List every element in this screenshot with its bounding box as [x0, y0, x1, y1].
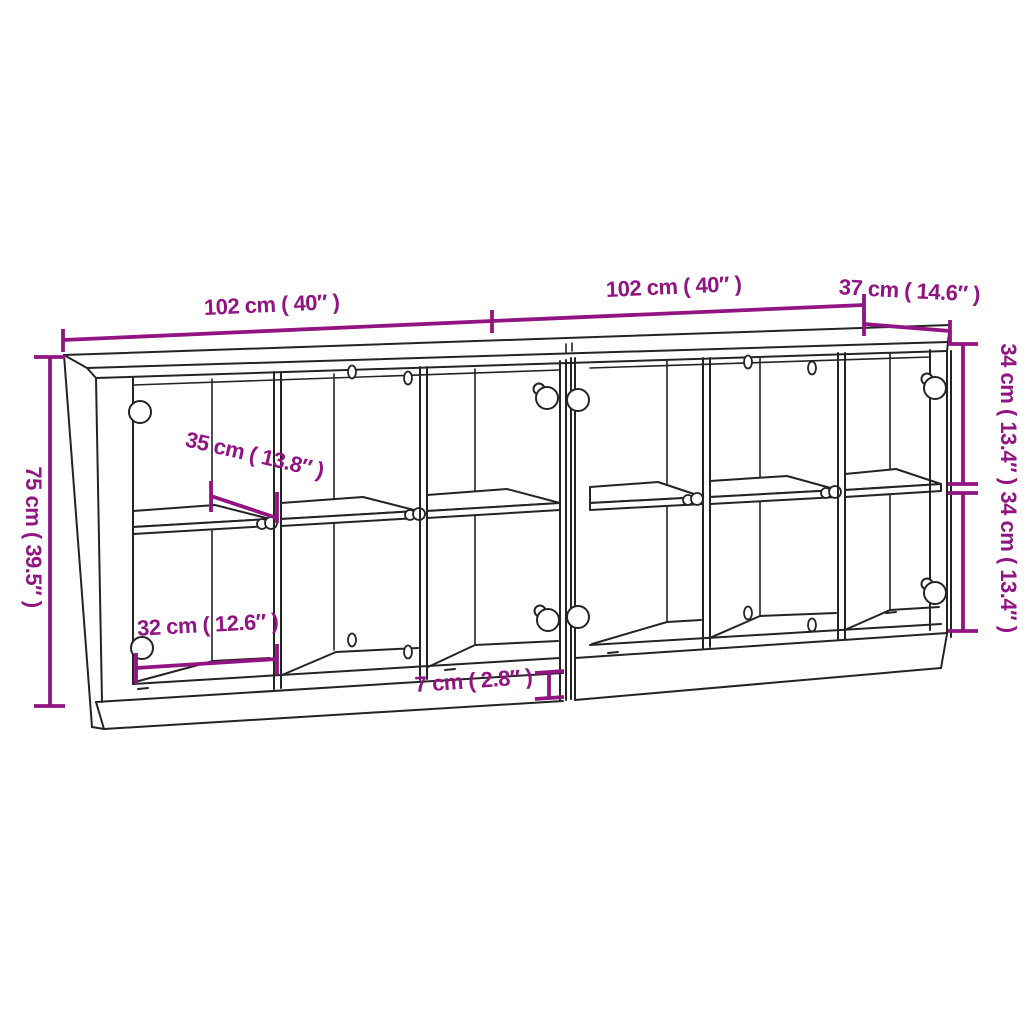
dim-compartment-width: 32 cm ( 12.6″ ) — [136, 608, 279, 684]
dim-lower-section-label: 34 cm ( 13.4″ ) — [996, 491, 1021, 632]
shelf-right-cabinet-col2 — [710, 476, 838, 504]
dim-depth: 37 cm ( 14.6″ ) — [838, 274, 981, 343]
dim-compartment-width-label: 32 cm ( 12.6″ ) — [136, 608, 279, 640]
dimension-diagram: 102 cm ( 40″ ) 102 cm ( 40″ ) 37 cm ( 14… — [0, 0, 1024, 1024]
shelf-right-cabinet-col3 — [845, 469, 941, 497]
dim-plinth-height: 7 cm ( 2.8″ ) — [414, 664, 564, 699]
dim-width-right-label: 102 cm ( 40″ ) — [605, 271, 742, 302]
dim-height: 75 cm ( 39.5″ ) — [21, 357, 65, 706]
ceiling-line-left — [133, 370, 560, 385]
shelf-left-cabinet-col2 — [281, 497, 418, 526]
dim-depth-label: 37 cm ( 14.6″ ) — [838, 274, 981, 306]
shelf-left-cabinet-col3 — [427, 489, 560, 518]
dim-width-left-label: 102 cm ( 40″ ) — [203, 289, 340, 320]
dim-upper-section: 34 cm ( 13.4″ ) — [948, 343, 1021, 484]
dim-shelf-depth-label: 35 cm ( 13.8″ ) — [183, 427, 326, 483]
bookcase-diagram-canvas: 102 cm ( 40″ ) 102 cm ( 40″ ) 37 cm ( 14… — [0, 0, 1024, 1024]
dim-width-right: 102 cm ( 40″ ) — [492, 271, 864, 321]
bottom-panel-right — [575, 624, 947, 700]
dim-height-label: 75 cm ( 39.5″ ) — [21, 466, 46, 607]
dim-lower-section: 34 cm ( 13.4″ ) — [948, 491, 1021, 632]
dim-plinth-height-label: 7 cm ( 2.8″ ) — [414, 664, 533, 697]
left-side-wall — [64, 355, 133, 729]
dim-upper-section-label: 34 cm ( 13.4″ ) — [996, 343, 1021, 484]
